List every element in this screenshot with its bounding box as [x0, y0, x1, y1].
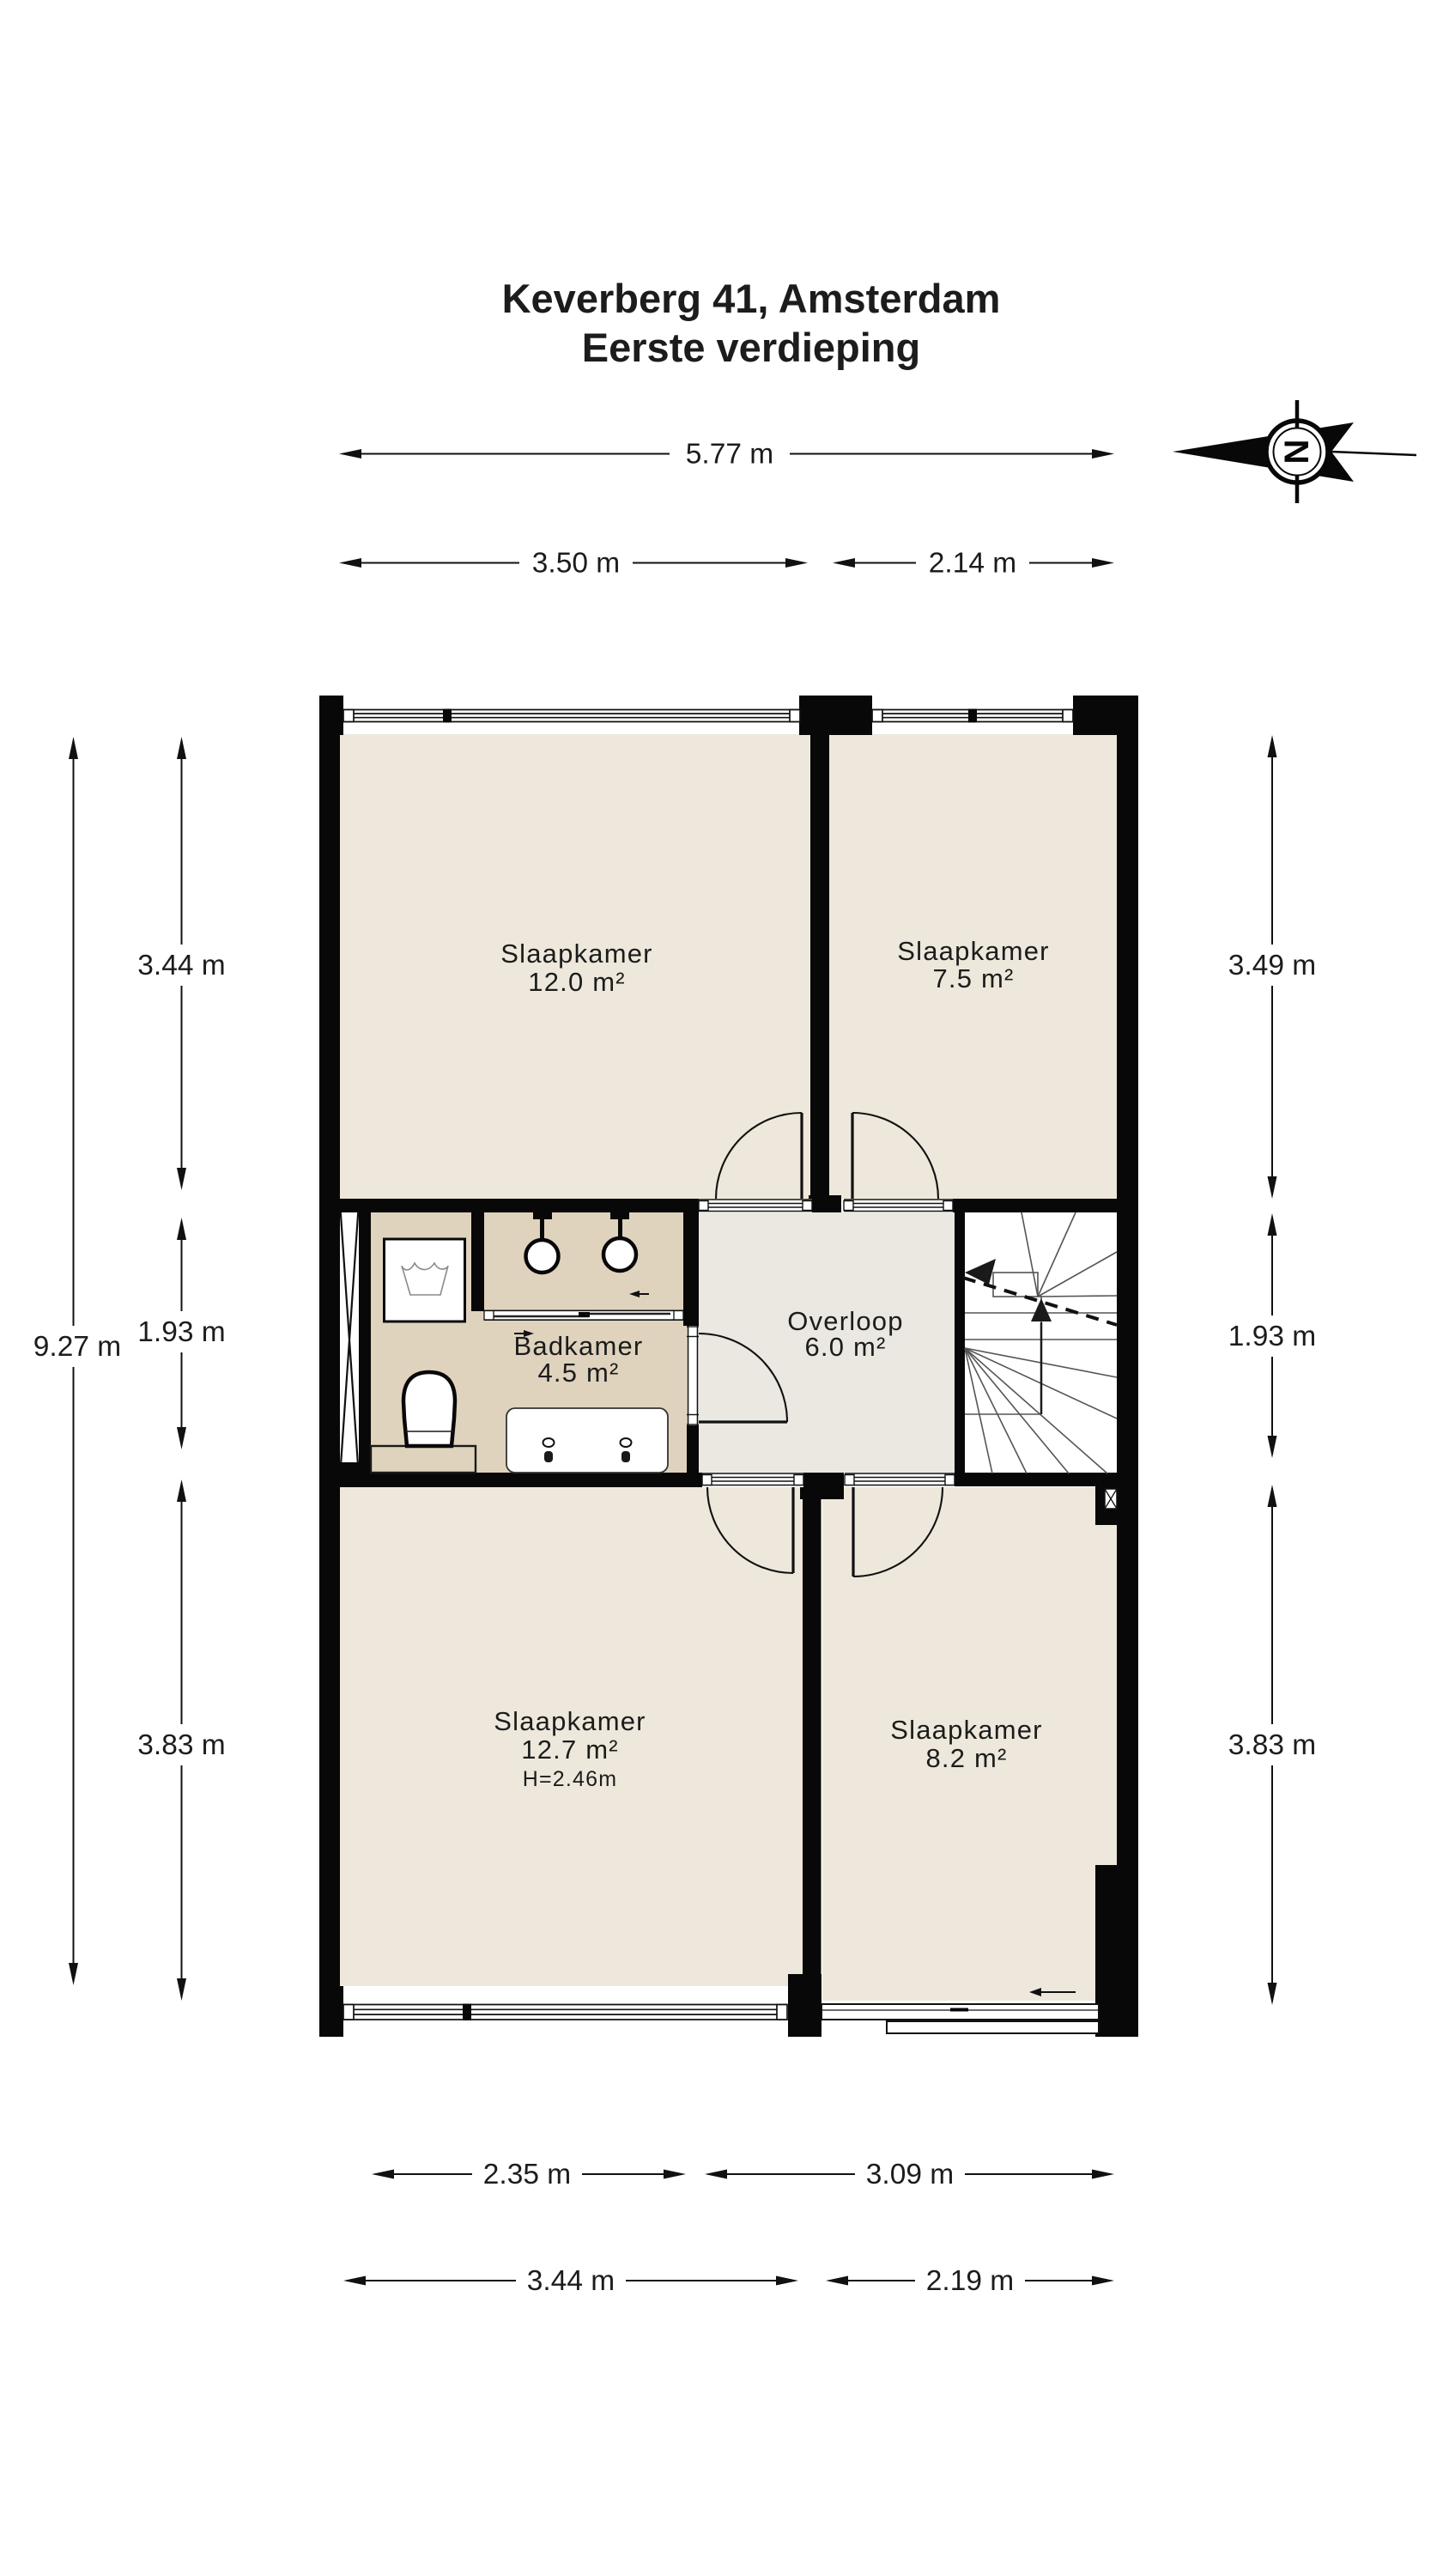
svg-text:2.19 m: 2.19 m — [926, 2265, 1014, 2297]
svg-text:7.5 m²: 7.5 m² — [932, 963, 1014, 993]
svg-text:Keverberg 41, Amsterdam: Keverberg 41, Amsterdam — [502, 276, 1001, 321]
svg-text:Badkamer: Badkamer — [514, 1331, 644, 1361]
svg-text:3.09 m: 3.09 m — [866, 2159, 954, 2190]
svg-text:3.44 m: 3.44 m — [527, 2265, 615, 2297]
svg-text:3.44 m: 3.44 m — [137, 950, 225, 981]
svg-text:12.0 m²: 12.0 m² — [528, 967, 626, 997]
svg-text:3.83 m: 3.83 m — [1228, 1729, 1316, 1761]
svg-text:3.50 m: 3.50 m — [532, 548, 620, 580]
svg-text:Slaapkamer: Slaapkamer — [897, 936, 1049, 966]
svg-text:2.35 m: 2.35 m — [483, 2159, 571, 2190]
svg-text:Slaapkamer: Slaapkamer — [500, 939, 652, 969]
svg-text:N: N — [1278, 440, 1316, 465]
svg-text:8.2 m²: 8.2 m² — [925, 1743, 1007, 1773]
svg-text:3.83 m: 3.83 m — [137, 1729, 225, 1761]
svg-text:Slaapkamer: Slaapkamer — [890, 1715, 1042, 1745]
svg-text:H=2.46m: H=2.46m — [523, 1767, 618, 1791]
svg-text:1.93 m: 1.93 m — [1228, 1321, 1316, 1352]
svg-text:6.0 m²: 6.0 m² — [804, 1332, 886, 1362]
svg-text:4.5 m²: 4.5 m² — [537, 1358, 619, 1388]
svg-text:Eerste verdieping: Eerste verdieping — [582, 325, 920, 370]
svg-text:1.93 m: 1.93 m — [137, 1316, 225, 1348]
svg-text:3.49 m: 3.49 m — [1228, 950, 1316, 981]
svg-text:Slaapkamer: Slaapkamer — [494, 1706, 646, 1736]
svg-text:5.77 m: 5.77 m — [686, 439, 773, 471]
svg-text:9.27 m: 9.27 m — [33, 1331, 121, 1363]
svg-text:2.14 m: 2.14 m — [929, 548, 1016, 580]
svg-text:12.7 m²: 12.7 m² — [521, 1735, 619, 1765]
